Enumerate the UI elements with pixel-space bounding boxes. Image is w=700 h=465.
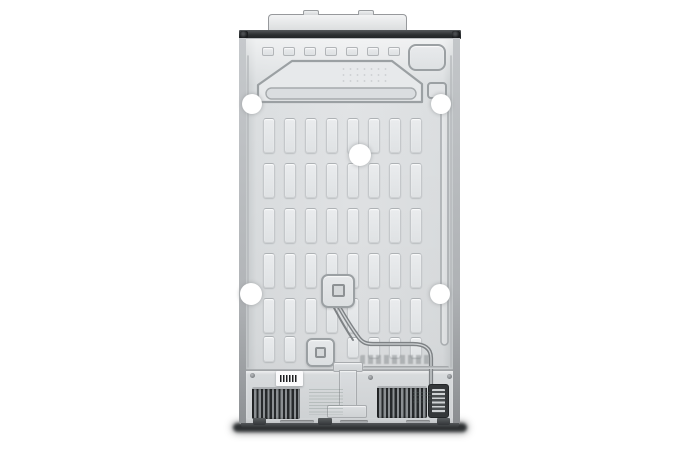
service-hole bbox=[332, 284, 345, 297]
drain-pan-slats bbox=[432, 389, 445, 413]
embossed-dot-pattern bbox=[340, 66, 388, 86]
right-conduit-channel bbox=[441, 100, 448, 345]
access-cover bbox=[408, 44, 446, 71]
small-access-cap bbox=[427, 82, 447, 99]
barcode-bars bbox=[280, 375, 298, 382]
service-hole bbox=[315, 347, 326, 358]
barcode-label bbox=[276, 371, 303, 386]
service-plate-upper bbox=[321, 274, 355, 308]
spec-print-label bbox=[413, 392, 431, 405]
drain-pan-grille bbox=[428, 384, 449, 418]
spec-print-label bbox=[309, 389, 343, 415]
vent-grille-left bbox=[252, 387, 300, 419]
cover-groove bbox=[363, 366, 449, 369]
recess-groove bbox=[266, 88, 416, 99]
service-plate-lower bbox=[306, 338, 335, 367]
embossed-marking bbox=[360, 355, 430, 364]
product-photo-stage bbox=[0, 0, 700, 465]
